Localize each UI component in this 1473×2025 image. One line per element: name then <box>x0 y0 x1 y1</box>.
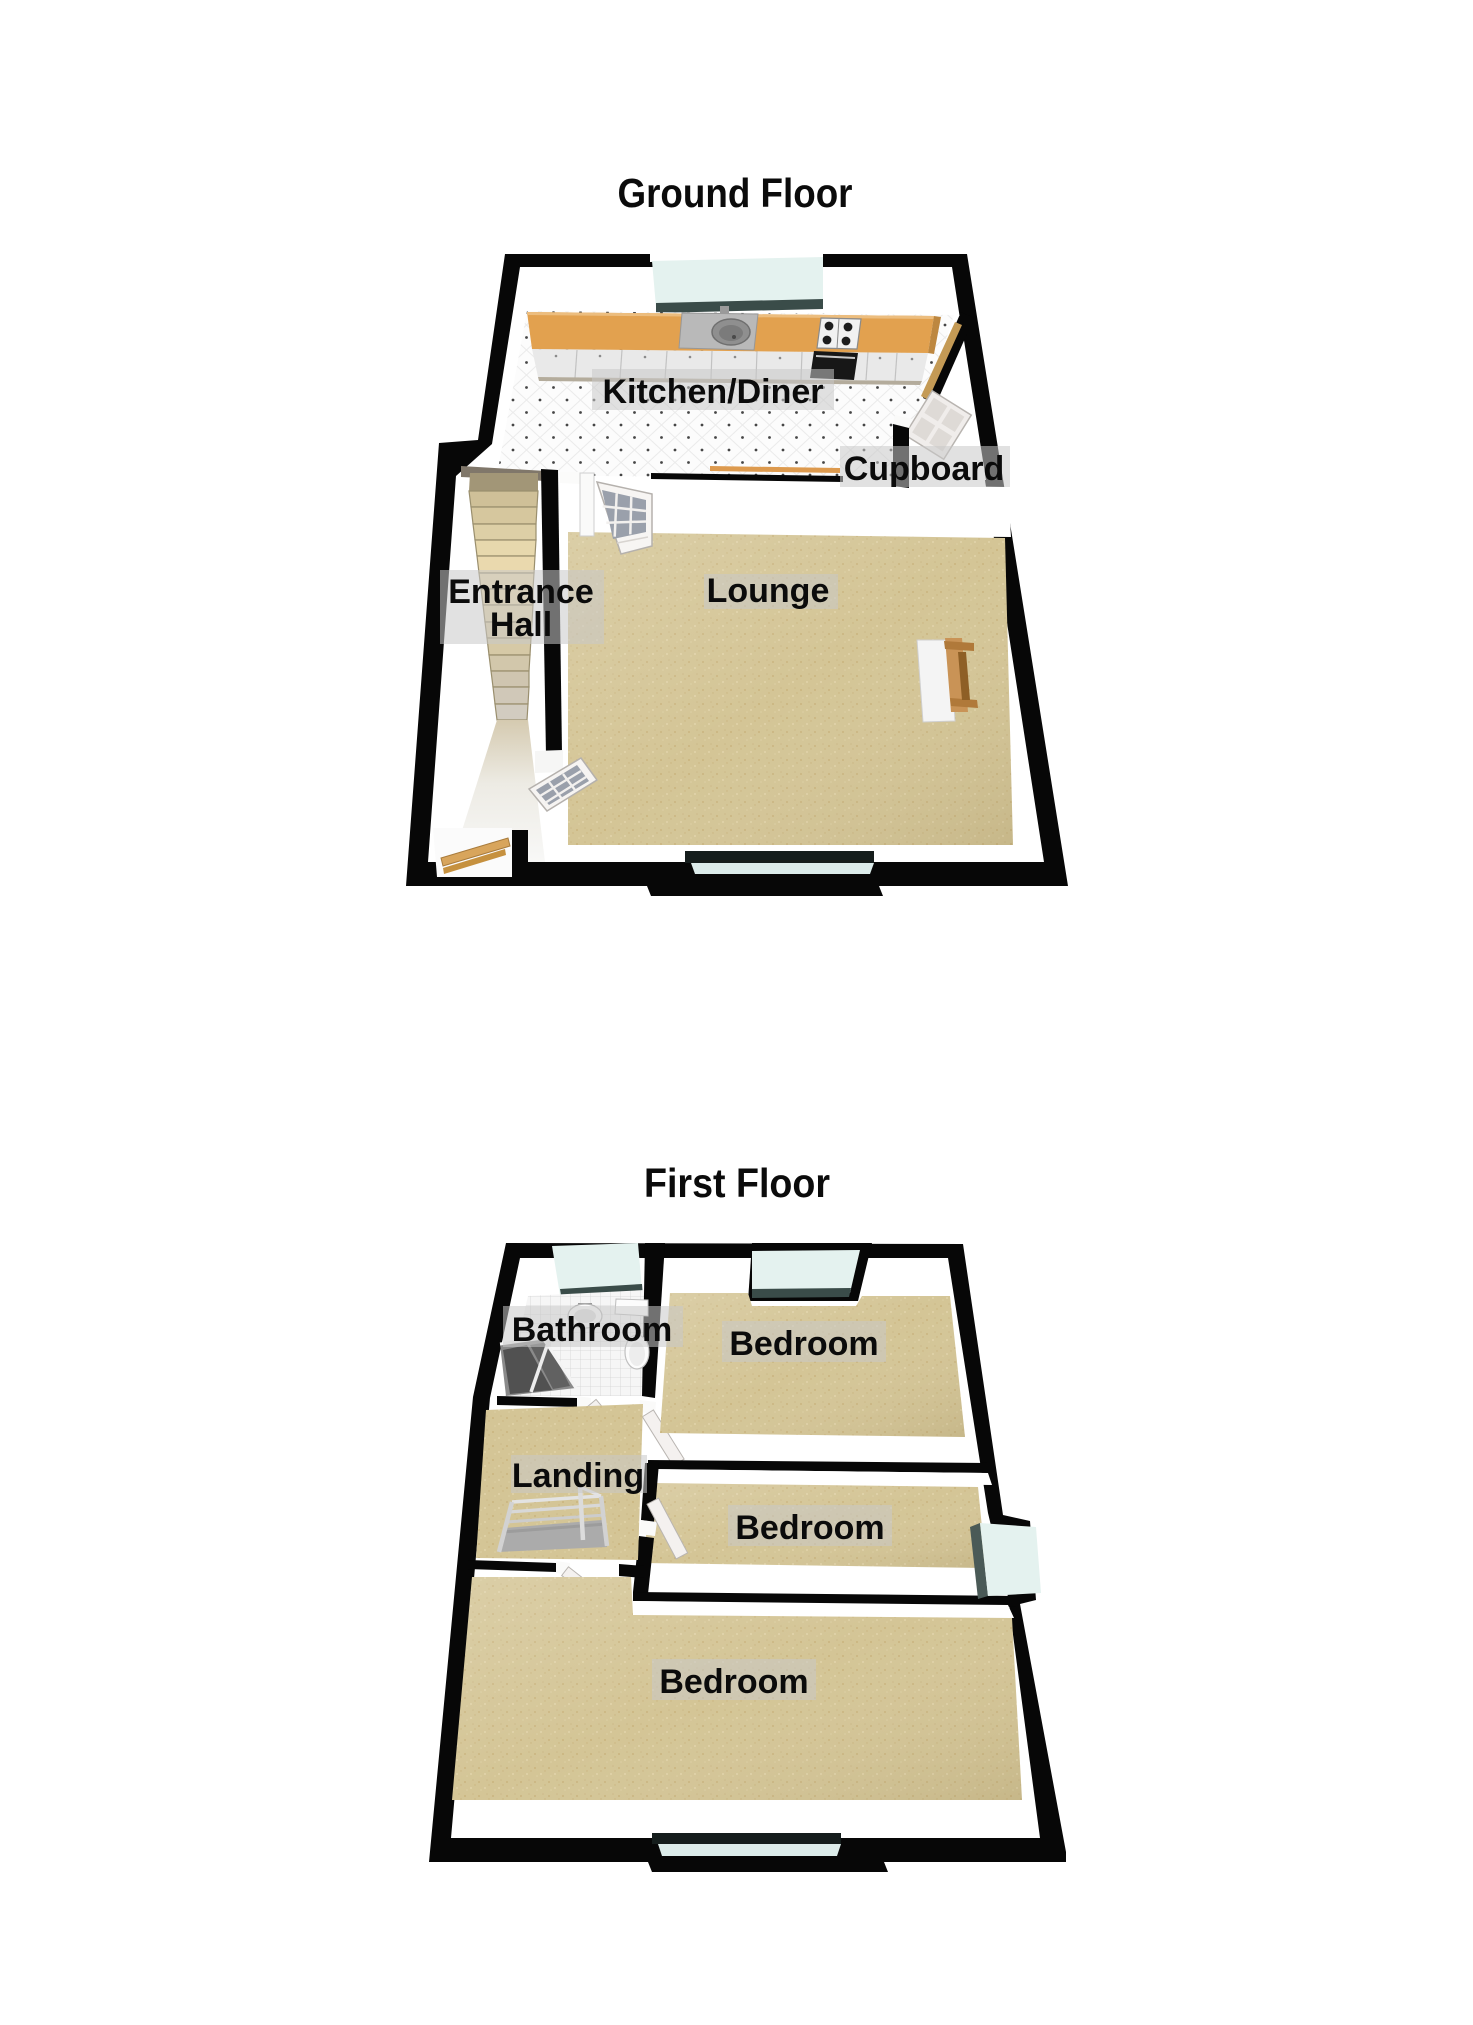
svg-text:First Floor: First Floor <box>644 1160 830 1206</box>
svg-text:Landing: Landing <box>512 1457 644 1495</box>
svg-text:Kitchen/Diner: Kitchen/Diner <box>602 373 823 411</box>
svg-text:Lounge: Lounge <box>707 572 830 610</box>
svg-text:Bedroom: Bedroom <box>659 1663 808 1701</box>
svg-text:Bathroom: Bathroom <box>512 1311 673 1349</box>
svg-text:Ground Floor: Ground Floor <box>618 170 853 216</box>
svg-text:Cupboard: Cupboard <box>844 450 1005 488</box>
svg-text:Bedroom: Bedroom <box>729 1325 878 1363</box>
svg-text:Bedroom: Bedroom <box>735 1509 884 1547</box>
svg-text:Hall: Hall <box>490 606 552 644</box>
